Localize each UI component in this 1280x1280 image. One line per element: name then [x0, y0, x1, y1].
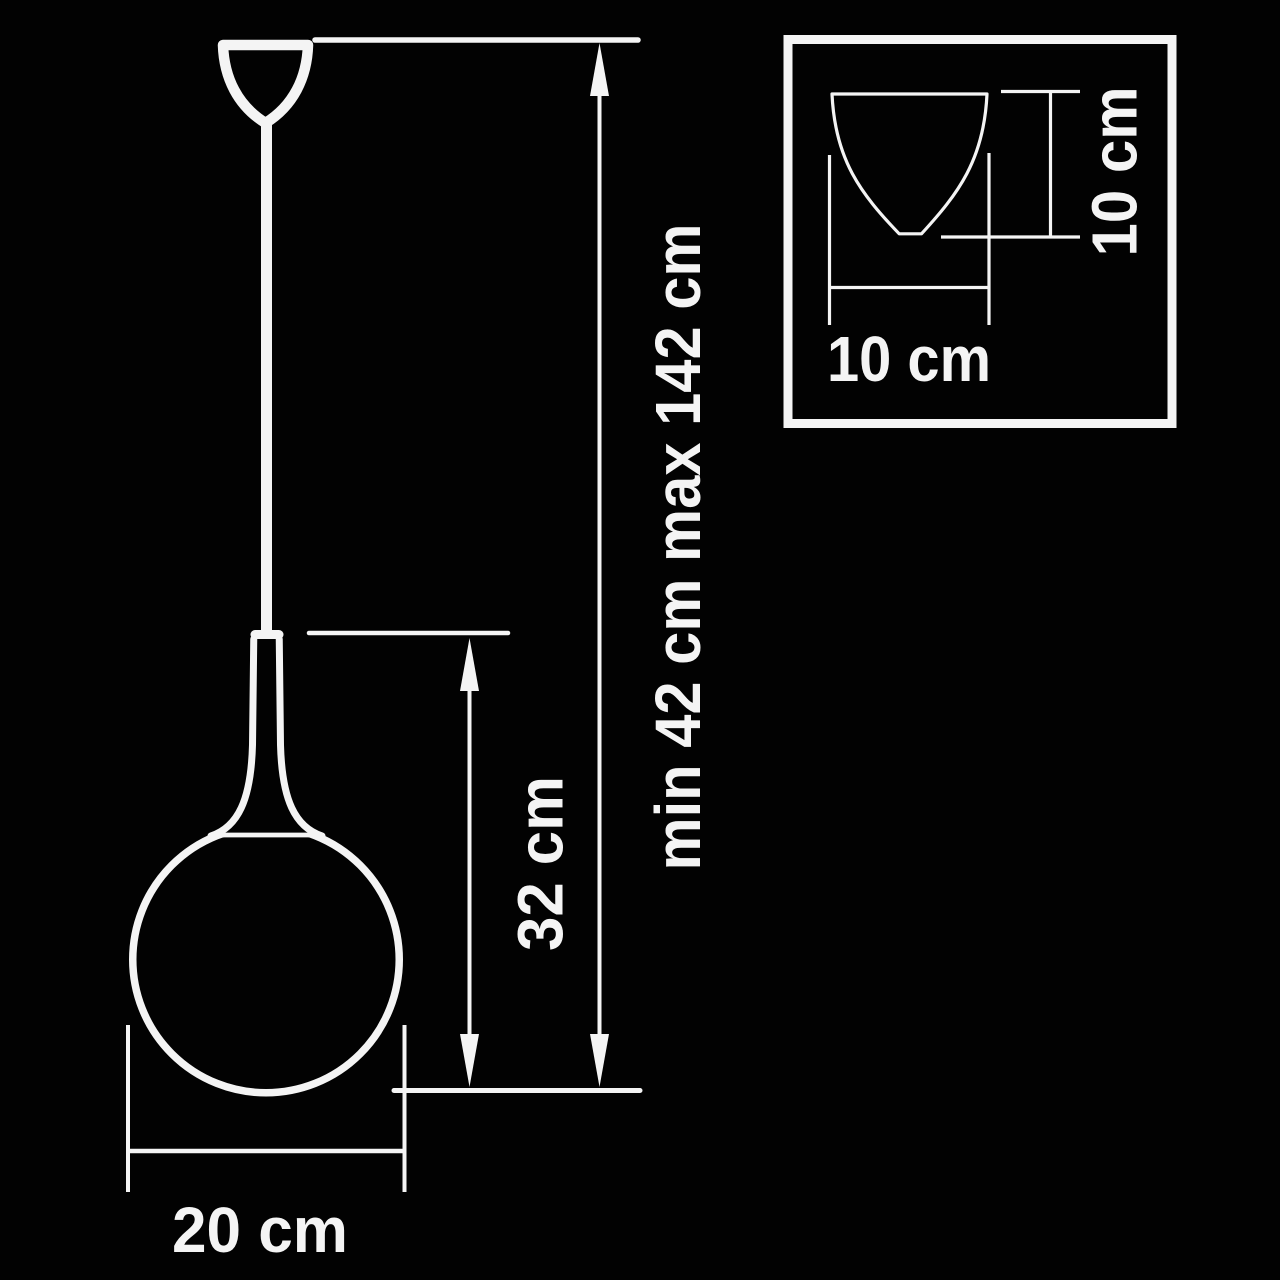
svg-text:10 cm: 10 cm	[1079, 87, 1151, 257]
svg-text:20 cm: 20 cm	[172, 1194, 348, 1266]
svg-text:32 cm: 32 cm	[505, 776, 577, 951]
svg-text:10 cm: 10 cm	[827, 323, 991, 395]
svg-text:min 42 cm max 142 cm: min 42 cm max 142 cm	[642, 224, 714, 871]
